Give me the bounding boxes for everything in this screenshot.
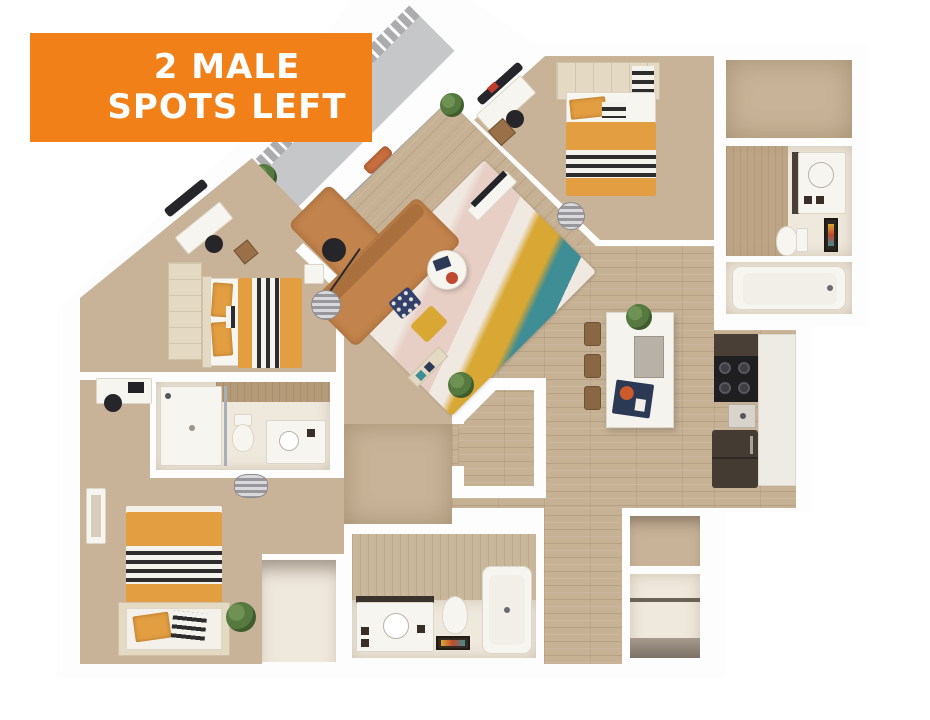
floorplan-scene: 2 MALE SPOTS LEFT [0, 0, 930, 720]
bathroom-c-sink [383, 613, 409, 639]
bar-stool-2 [584, 354, 601, 378]
bedroom-c-desk-chair [104, 394, 122, 412]
bathtub-c [482, 566, 532, 654]
bathroom-c-rug-inner [441, 640, 465, 646]
bathroom-a-toilet-tank [796, 228, 808, 252]
kitchen-island-sink [634, 336, 664, 378]
bathtub-a [732, 266, 846, 310]
availability-banner: 2 MALE SPOTS LEFT [30, 33, 372, 142]
kitchen-sink [728, 404, 756, 428]
bedroom-b-desk-chair [205, 235, 223, 253]
bedroom-c-blanket-zebra [126, 546, 222, 584]
pantry-wall-bottom [452, 486, 544, 498]
bathroom-b-vanity [266, 420, 326, 464]
bedroom-c-art-inner [91, 495, 101, 537]
hall-plant [448, 372, 474, 398]
stove-burner-2 [738, 362, 750, 374]
closet-hall-floor [630, 516, 700, 566]
stove-burner-4 [738, 382, 750, 394]
laundry-closet-floor [630, 574, 700, 658]
bathroom-c-toilet [442, 596, 468, 634]
bathroom-a-soap-2 [816, 196, 824, 204]
bathroom-a-toilet [776, 226, 798, 256]
bathroom-b-shower [160, 386, 222, 466]
bedroom-b-wardrobe [168, 262, 202, 360]
bedroom-b-blanket-zebra [252, 278, 280, 368]
bathroom-a-art-inner [828, 224, 834, 246]
fridge-handle [750, 436, 753, 454]
bathroom-c-soap-2 [361, 639, 369, 647]
pantry-wall-right [534, 378, 546, 498]
bedroom-a-blanket-zebra [566, 150, 656, 178]
bathroom-c-soap-1 [361, 627, 369, 635]
kitchen-sink-faucet [740, 413, 746, 419]
kitchen-upper-cabinet [714, 334, 758, 356]
living-plant-top [440, 93, 464, 117]
kitchen-stove [714, 356, 758, 402]
bathroom-c-rug [436, 636, 470, 650]
shower-glass [224, 386, 227, 466]
bathroom-b-mat [234, 474, 268, 498]
banner-line-1: 2 MALE [154, 48, 301, 87]
bathroom-b-soap [307, 429, 315, 437]
bedroom-c-plant [226, 602, 256, 632]
tray-card [634, 398, 646, 411]
bathroom-c-vanity [356, 602, 434, 652]
bathroom-c-soap-3 [417, 625, 425, 633]
kitchen-island-flowers [626, 304, 652, 330]
bathtub-c-faucet [504, 607, 510, 613]
bathroom-a-sink [808, 162, 834, 188]
hall-carpet-lower [344, 424, 452, 524]
bathroom-b-toilet [232, 424, 254, 452]
bookshelf-book-teal [415, 370, 426, 381]
bar-stool-1 [584, 322, 601, 346]
bedroom-c-art [86, 488, 106, 544]
bedroom-c-pillow-orange [132, 612, 171, 643]
rear-hall-floor [544, 508, 622, 664]
bathtub-a-basin [743, 273, 837, 305]
floor-lamp-shade [322, 238, 346, 262]
bedroom-c-closet [262, 560, 336, 662]
bedroom-c-desk-printer [128, 382, 144, 393]
bathroom-b-backsplash [216, 382, 330, 402]
tray-plate [619, 385, 635, 401]
shower-head [165, 393, 171, 399]
bedroom-a-pillow-zebra [602, 102, 626, 118]
living-pouf [311, 290, 341, 320]
bathroom-a-soap-1 [804, 196, 812, 204]
kitchen-island-tray [612, 380, 654, 419]
bedroom-c-pillow-zebra [171, 610, 208, 641]
stove-burner-1 [719, 362, 731, 374]
kitchen-fridge [712, 430, 758, 488]
banner-line-2: SPOTS LEFT [107, 88, 346, 127]
laundry-shelf-line [630, 598, 700, 602]
kitchen-counter [758, 334, 796, 486]
bathtub-a-faucet [827, 285, 833, 291]
bathroom-b-sink [279, 431, 299, 451]
coffee-table-dish [446, 272, 458, 284]
shower-drain [189, 425, 195, 431]
laundry-bottom-shadow [630, 638, 700, 658]
fridge-split-line [712, 457, 758, 459]
bar-stool-3 [584, 386, 601, 410]
bookshelf-book-navy [424, 361, 435, 372]
bathroom-a-art [824, 218, 838, 252]
closet-a-floor [726, 60, 852, 138]
stove-burner-3 [719, 382, 731, 394]
bedroom-a-pouf [557, 202, 585, 230]
bedroom-b-nightstand [304, 264, 324, 284]
